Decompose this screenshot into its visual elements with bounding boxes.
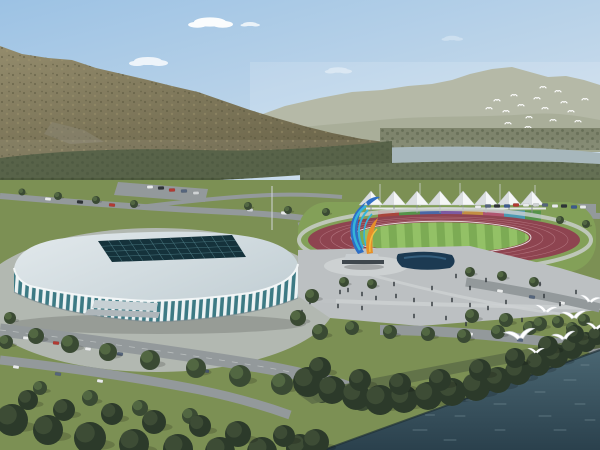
pedestrian bbox=[395, 294, 397, 298]
tree-highlight bbox=[141, 351, 153, 363]
scene-canvas bbox=[0, 0, 600, 450]
pedestrian bbox=[559, 302, 561, 306]
tree-highlight bbox=[274, 426, 287, 439]
tree-highlight bbox=[492, 326, 500, 334]
tree-highlight bbox=[310, 358, 323, 371]
tree-highlight bbox=[304, 430, 320, 446]
distant-bird bbox=[582, 99, 588, 100]
tree-highlight bbox=[582, 220, 587, 225]
car bbox=[193, 191, 199, 194]
car bbox=[561, 204, 567, 207]
tree-highlight bbox=[54, 192, 59, 197]
distant-bird bbox=[494, 100, 500, 101]
tree-highlight bbox=[340, 277, 346, 283]
pedestrian bbox=[485, 278, 487, 282]
car bbox=[513, 203, 519, 206]
tree-highlight bbox=[384, 326, 392, 334]
car bbox=[147, 185, 153, 188]
tree-highlight bbox=[579, 314, 586, 321]
car bbox=[523, 203, 529, 206]
distant-bird bbox=[511, 95, 517, 96]
pedestrian bbox=[487, 306, 489, 310]
car bbox=[169, 188, 175, 191]
tree-highlight bbox=[102, 404, 115, 417]
tree-highlight bbox=[306, 290, 314, 298]
tree-highlight bbox=[291, 311, 301, 321]
pedestrian bbox=[393, 282, 395, 286]
distant-bird bbox=[486, 108, 492, 109]
distant-bird bbox=[568, 111, 574, 112]
tree-highlight bbox=[500, 314, 508, 322]
tree-highlight bbox=[458, 330, 466, 338]
pedestrian bbox=[339, 290, 341, 294]
car bbox=[497, 289, 503, 293]
pedestrian bbox=[445, 316, 447, 320]
distant-bird bbox=[575, 121, 581, 122]
distant-bird bbox=[505, 123, 511, 124]
tree-highlight bbox=[553, 316, 560, 323]
pedestrian bbox=[347, 288, 349, 292]
tree-highlight bbox=[143, 411, 157, 425]
pedestrian bbox=[543, 294, 545, 298]
tree-highlight bbox=[83, 391, 93, 401]
tree-highlight bbox=[415, 383, 432, 400]
tree-highlight bbox=[76, 423, 95, 442]
tree-highlight bbox=[466, 267, 472, 273]
pedestrian bbox=[469, 286, 471, 290]
tree-highlight bbox=[506, 349, 518, 361]
car bbox=[53, 341, 59, 345]
tree-highlight bbox=[187, 359, 199, 371]
sculpture-plinth bbox=[342, 260, 384, 264]
tree-highlight bbox=[346, 322, 354, 330]
car bbox=[494, 204, 500, 207]
distant-bird bbox=[518, 105, 524, 106]
car bbox=[533, 203, 539, 206]
tree-highlight bbox=[284, 206, 289, 211]
car bbox=[45, 197, 51, 201]
tree-highlight bbox=[190, 416, 203, 429]
tree-highlight bbox=[367, 386, 385, 404]
car bbox=[85, 347, 91, 351]
pedestrian bbox=[431, 286, 433, 290]
tree-highlight bbox=[244, 202, 249, 207]
car bbox=[158, 186, 164, 189]
tree-highlight bbox=[422, 328, 430, 336]
tree-highlight bbox=[29, 329, 39, 339]
pedestrian bbox=[451, 298, 453, 302]
car bbox=[580, 205, 586, 208]
tree-highlight bbox=[466, 310, 474, 318]
sculpture-shadow bbox=[344, 264, 384, 270]
tree-highlight bbox=[35, 416, 53, 434]
tree-highlight bbox=[498, 271, 504, 277]
reflecting-pool bbox=[397, 252, 455, 270]
tree-highlight bbox=[539, 337, 551, 349]
tree-highlight bbox=[527, 353, 541, 367]
tree-highlight bbox=[272, 374, 285, 387]
tree-highlight bbox=[100, 344, 111, 355]
tree-highlight bbox=[430, 370, 443, 383]
distant-bird bbox=[534, 98, 540, 99]
distant-bird bbox=[561, 102, 567, 103]
pedestrian bbox=[465, 322, 467, 326]
car bbox=[13, 365, 19, 369]
pedestrian bbox=[375, 296, 377, 300]
midground-haze bbox=[0, 140, 600, 178]
tree-highlight bbox=[350, 370, 363, 383]
tree-highlight bbox=[121, 430, 139, 448]
tree-highlight bbox=[133, 401, 143, 411]
car bbox=[475, 205, 481, 208]
tree-highlight bbox=[230, 366, 243, 379]
tree-highlight bbox=[19, 391, 31, 403]
car bbox=[542, 203, 548, 206]
car bbox=[109, 203, 115, 207]
car bbox=[504, 204, 510, 207]
pedestrian bbox=[337, 304, 339, 308]
pedestrian bbox=[455, 274, 457, 278]
distant-bird bbox=[525, 127, 531, 128]
sculpture-pedestal bbox=[344, 254, 380, 261]
distant-bird bbox=[555, 91, 561, 92]
pedestrian bbox=[505, 300, 507, 304]
tree-highlight bbox=[534, 318, 542, 326]
tree-highlight bbox=[313, 325, 323, 335]
pedestrian bbox=[361, 306, 363, 310]
tree-highlight bbox=[368, 279, 374, 285]
tree-highlight bbox=[130, 200, 135, 205]
pedestrian bbox=[413, 298, 415, 302]
car bbox=[485, 204, 491, 207]
pedestrian bbox=[361, 292, 363, 296]
car bbox=[571, 205, 577, 208]
architectural-rendering bbox=[0, 0, 600, 450]
pedestrian bbox=[575, 290, 577, 294]
distant-bird bbox=[550, 120, 556, 121]
tree-highlight bbox=[390, 374, 403, 387]
distant-bird bbox=[503, 111, 509, 112]
tree-highlight bbox=[0, 336, 8, 344]
pedestrian bbox=[469, 303, 471, 307]
tree-highlight bbox=[322, 208, 327, 213]
tree-highlight bbox=[34, 382, 42, 390]
tree-highlight bbox=[92, 196, 97, 201]
tree-highlight bbox=[530, 277, 536, 283]
pedestrian bbox=[413, 314, 415, 318]
tree-highlight bbox=[5, 312, 12, 319]
car bbox=[552, 204, 558, 207]
tree-highlight bbox=[319, 377, 336, 394]
tree-highlight bbox=[226, 422, 242, 438]
distant-bird bbox=[526, 117, 532, 118]
distant-bird bbox=[540, 87, 546, 88]
tree-highlight bbox=[470, 360, 483, 373]
distant-bird bbox=[542, 108, 548, 109]
car bbox=[77, 200, 83, 204]
car bbox=[181, 189, 187, 192]
pedestrian bbox=[431, 302, 433, 306]
tree-highlight bbox=[19, 189, 23, 193]
tree-highlight bbox=[556, 216, 561, 221]
tree-highlight bbox=[62, 336, 73, 347]
pedestrian bbox=[521, 318, 523, 322]
tree-highlight bbox=[54, 400, 67, 413]
tree-highlight bbox=[183, 409, 193, 419]
